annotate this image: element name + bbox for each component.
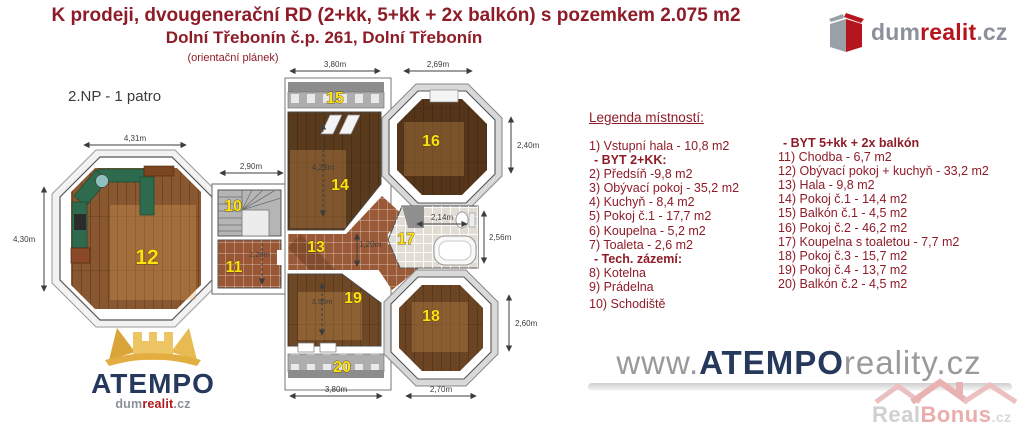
legend-item: 19) Pokoj č.4 - 13,7 m2 [778, 263, 989, 277]
legend-item: 9) Prádelna [589, 280, 739, 294]
svg-text:1,20m: 1,20m [359, 240, 382, 249]
room-18-octagon [384, 270, 498, 386]
atempo-sub-realit: realit [142, 397, 173, 411]
realbonus-real: Real [872, 402, 920, 427]
legend-item: 18) Pokoj č.3 - 15,7 m2 [778, 249, 989, 263]
legend-item: 4) Kuchyň - 8,4 m2 [589, 195, 739, 209]
legend-item: 17) Koupelna s toaletou - 7,7 m2 [778, 235, 989, 249]
legend-item: 8) Kotelna [589, 266, 739, 280]
svg-text:4,30m: 4,30m [13, 235, 36, 244]
svg-text:3,80m: 3,80m [325, 385, 348, 394]
legend-section-byt5kk: - BYT 5+kk + 2x balkón [778, 136, 989, 150]
legend-item: 3) Obývací pokoj - 35,2 m2 [589, 181, 739, 195]
atempo-logo-wordmark: ATEMPO [78, 371, 228, 397]
svg-text:2,70m: 2,70m [430, 385, 453, 394]
svg-text:2,60m: 2,60m [515, 319, 538, 328]
svg-text:4,28m: 4,28m [312, 163, 335, 172]
dim-2-60: 2,60m [509, 295, 538, 351]
page-title: K prodeji, dvougenerační RD (2+kk, 5+kk … [0, 5, 792, 27]
brand-realit: realit [920, 19, 976, 45]
realbonus-cz: .cz [991, 409, 1011, 425]
legend-section-tech: - Tech. zázemí: [589, 252, 739, 266]
dim-2-56: 2,56m [484, 211, 512, 263]
room-14-label: 14 [331, 177, 349, 194]
legend-item: 1) Vstupní hala - 10,8 m2 [589, 139, 739, 153]
dim-4-30: 4,30m [13, 187, 44, 291]
realbonus-watermark: RealBonus.cz [872, 402, 1012, 428]
dumrealit-logo: dumrealit.cz [828, 10, 1008, 54]
window-icon [320, 343, 336, 352]
page-subtitle: Dolní Třebonín č.p. 261, Dolní Třebonín [0, 28, 648, 48]
legend-item: 13) Hala - 9,8 m2 [778, 178, 989, 192]
legend-item: 16) Pokoj č.2 - 46,2 m2 [778, 221, 989, 235]
realbonus-roofs-icon [872, 376, 1022, 404]
toilet-icon [456, 212, 468, 228]
window-icon [298, 343, 314, 352]
floor-label: 2.NP - 1 patro [68, 88, 161, 105]
legend-item: 2) Předsíň -9,8 m2 [589, 167, 739, 181]
svg-text:2,14m: 2,14m [431, 213, 454, 222]
room-19-label: 19 [344, 290, 362, 307]
legend-item: 14) Pokoj č.1 - 14,4 m2 [778, 192, 989, 206]
atempo-crown-icon [95, 320, 211, 366]
legend-title: Legenda místností: [589, 110, 704, 125]
room-20-label: 20 [333, 359, 351, 376]
atempo-sub-cz: .cz [173, 397, 190, 411]
skylight-icon [430, 90, 458, 102]
dim-4-31: 4,31m [84, 134, 186, 145]
svg-text:4,31m: 4,31m [124, 134, 147, 143]
legend-item: 20) Balkón č.2 - 4,5 m2 [778, 277, 989, 291]
svg-text:2,90m: 2,90m [240, 162, 263, 171]
room-11-label: 11 [226, 259, 243, 276]
legend-item: 15) Balkón č.1 - 4,5 m2 [778, 206, 989, 220]
legend-section-byt2kk: - BYT 2+KK: [589, 153, 739, 167]
legend-item: 10) Schodiště [589, 297, 739, 311]
svg-text:3,95m: 3,95m [312, 297, 333, 306]
svg-text:2,40m: 2,40m [517, 141, 540, 150]
room-15-label: 15 [326, 90, 344, 107]
room-12-label: 12 [135, 246, 158, 269]
room-16-octagon [382, 84, 502, 210]
legend-item: 5) Pokoj č.1 - 17,7 m2 [589, 209, 739, 223]
legend-item: 6) Koupelna - 5,2 m2 [589, 224, 739, 238]
atempo-sub-dum: dum [115, 397, 142, 411]
flyer-page: 10 11 12 13 14 15 16 17 18 19 20 4,31m 4… [0, 0, 1024, 433]
dim-2-70: 2,70m [406, 385, 476, 396]
dim-2-40: 2,40m [511, 117, 540, 173]
room-17-label: 17 [397, 231, 415, 248]
dumrealit-building-icon [828, 10, 866, 54]
room-18-label: 18 [422, 308, 440, 325]
legend-left-column: 1) Vstupní hala - 10,8 m2 - BYT 2+KK: 2)… [589, 139, 739, 311]
room-13-label: 13 [307, 239, 325, 256]
svg-text:2,20m: 2,20m [249, 250, 270, 259]
sink-icon [96, 175, 109, 188]
room-10-label: 10 [224, 198, 242, 215]
dumrealit-wordmark: dumrealit.cz [871, 12, 1008, 52]
watermark-brand: ATEMPO [699, 344, 844, 381]
svg-text:2,56m: 2,56m [489, 233, 512, 242]
legend-item: 12) Obývací pokoj + kuchyň - 33,2 m2 [778, 164, 989, 178]
dim-2-90: 2,90m [220, 162, 283, 173]
watermark-www: www. [616, 344, 699, 381]
legend-item: 7) Toaleta - 2,6 m2 [589, 238, 739, 252]
room-16-label: 16 [422, 133, 440, 150]
atempo-logo: ATEMPO dumrealit.cz [78, 320, 228, 411]
brand-cz: .cz [976, 19, 1007, 45]
legend-right-column: - BYT 5+kk + 2x balkón 11) Chodba - 6,7 … [778, 136, 989, 291]
atempo-logo-sub: dumrealit.cz [78, 397, 228, 411]
realbonus-bonus: Bonus [920, 402, 991, 427]
legend-item: 11) Chodba - 6,7 m2 [778, 150, 989, 164]
brand-dum: dum [871, 19, 920, 45]
plan-note: (orientační plánek) [0, 52, 466, 64]
